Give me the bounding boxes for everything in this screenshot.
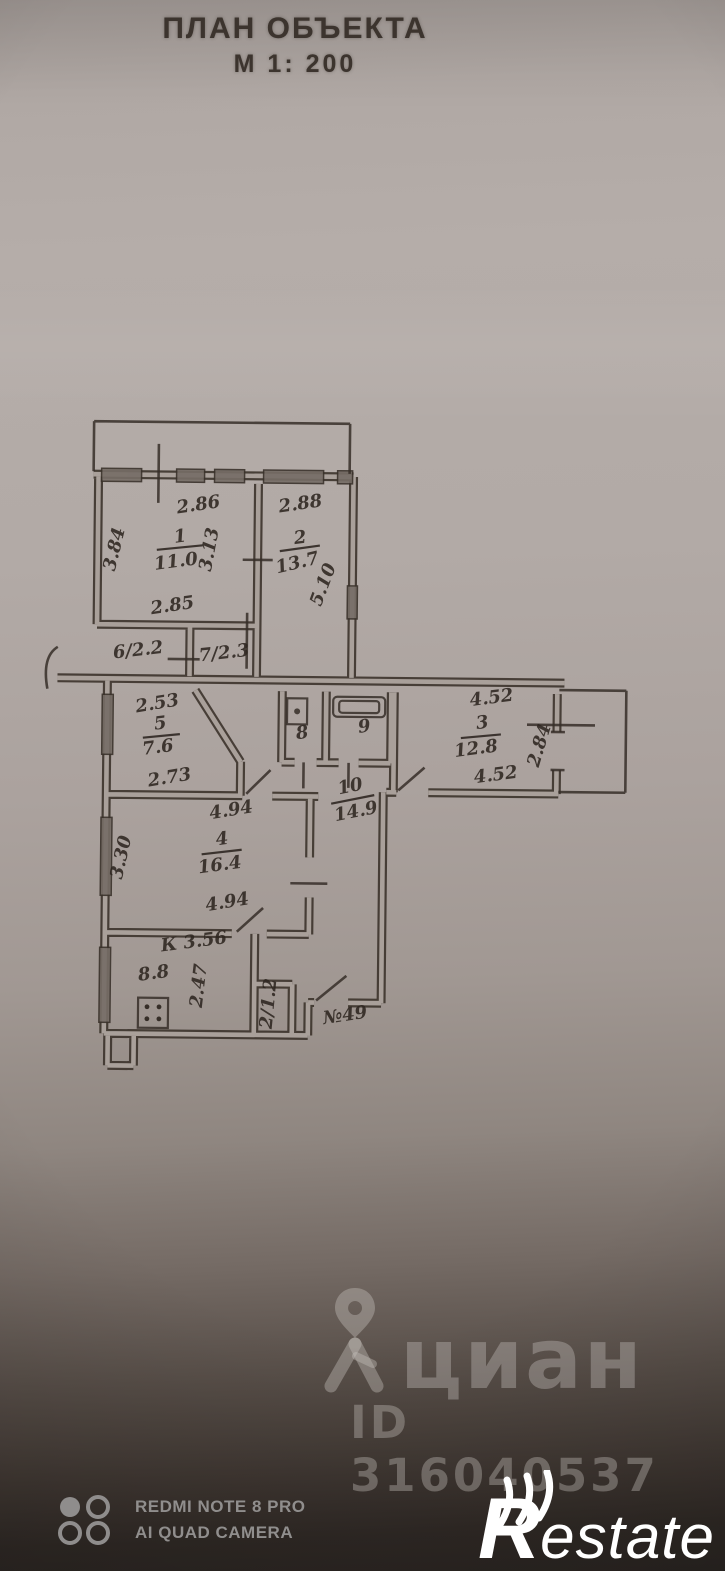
room4-number: 4 bbox=[214, 828, 229, 850]
restate-logo: Restate bbox=[478, 1486, 715, 1571]
camera-watermark: REDMI NOTE 8 PRO AI QUAD CAMERA bbox=[55, 1492, 305, 1548]
room2-number: 2 bbox=[292, 527, 308, 550]
cian-person-icon bbox=[331, 1344, 377, 1386]
room1-right-height: 3.13 bbox=[195, 526, 224, 573]
room3-bottom-width: 4.52 bbox=[473, 762, 519, 788]
room1-left-height: 3.84 bbox=[99, 525, 130, 573]
camera-watermark-line1: REDMI NOTE 8 PRO bbox=[135, 1494, 305, 1520]
balcony-right-outline bbox=[558, 690, 626, 793]
room1-top-width: 2.86 bbox=[174, 491, 222, 518]
kitchen-height: 2.47 bbox=[186, 962, 212, 1009]
closet-small-label: 2/1.2 bbox=[256, 977, 282, 1030]
room4-bottom-width: 4.94 bbox=[204, 888, 251, 916]
closet7-label: 7/2.3 bbox=[198, 640, 250, 666]
room3-right-height: 2.84 bbox=[523, 721, 556, 770]
room2-area: 13.7 bbox=[274, 548, 322, 579]
closet6-label: 6/2.2 bbox=[112, 637, 164, 663]
camera-watermark-line2: AI QUAD CAMERA bbox=[135, 1520, 305, 1546]
kitchen-area: 8.8 bbox=[136, 961, 171, 986]
room9-number: 9 bbox=[357, 715, 373, 737]
room4-area: 16.4 bbox=[197, 852, 243, 878]
room2-top-width: 2.88 bbox=[276, 490, 324, 517]
quad-camera-icon bbox=[55, 1492, 117, 1548]
room3-area: 12.8 bbox=[453, 735, 500, 762]
restate-logo-text: estate bbox=[540, 1502, 715, 1571]
floor-plan-photo: ПЛАН ОБЪЕКТА М 1: 200 bbox=[0, 0, 725, 1571]
balcony-top-outline bbox=[94, 421, 351, 474]
stair-hook-mark bbox=[46, 647, 58, 689]
room5-area: 7.6 bbox=[141, 735, 175, 760]
room10-number: 10 bbox=[336, 774, 365, 800]
apartment-number: №49 bbox=[320, 1002, 369, 1030]
sink-icon bbox=[287, 698, 307, 724]
room1-number: 1 bbox=[173, 525, 188, 547]
room1-area: 11.0 bbox=[153, 548, 200, 575]
room3-number: 3 bbox=[475, 712, 490, 734]
cian-logo-icon bbox=[315, 1286, 395, 1396]
bathtub-icon bbox=[333, 697, 385, 718]
restate-logo-initial: R bbox=[478, 1486, 540, 1571]
room5-bottom-width: 2.73 bbox=[145, 764, 193, 792]
room1-bottom-width: 2.85 bbox=[148, 592, 195, 619]
cian-logo-text: циан bbox=[400, 1310, 644, 1408]
room4-top-width: 4.94 bbox=[208, 796, 255, 824]
room3-top-width: 4.52 bbox=[468, 685, 514, 711]
map-pin-icon bbox=[335, 1288, 375, 1338]
room5-number: 5 bbox=[153, 712, 168, 734]
stove-icon bbox=[138, 998, 168, 1028]
